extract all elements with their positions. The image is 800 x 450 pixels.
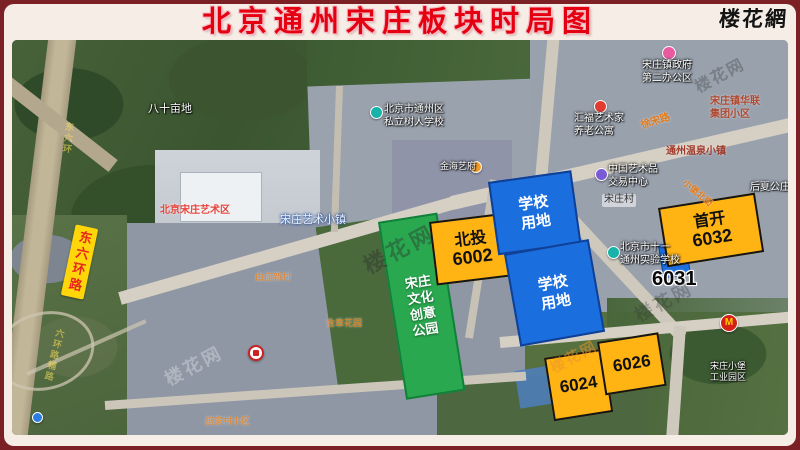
place-label-line: 私立树人学校 <box>384 117 444 130</box>
place-label-hualian-estate: 宋庄镇华联 集团小区 <box>710 96 760 121</box>
page-title: 北京通州宋庄板块时局图 <box>0 4 800 40</box>
place-label-town-government: 宋庄镇政府 第二办公区 <box>642 60 692 85</box>
place-label-line: 宋庄镇政府 <box>642 60 692 73</box>
place-label-line: 宋庄小堡 <box>710 361 746 372</box>
place-label-line: 北京市通州区 <box>384 104 444 117</box>
place-label-line: 汇福艺术家 <box>574 113 624 126</box>
place-label-hanzhang: 含章花园 <box>326 318 362 329</box>
poi-dot-icon <box>32 412 43 423</box>
place-label-huajiacun: 画家村小区 <box>205 416 250 427</box>
school-poi-icon <box>607 246 620 259</box>
government-poi-icon <box>662 46 676 60</box>
transit-stop-icon <box>248 345 264 361</box>
place-label-line: 养老公寓 <box>574 126 624 139</box>
plot-label: 6024 <box>558 372 598 398</box>
place-label-line: 交易中心 <box>608 177 658 190</box>
plot-label: 6002 <box>452 246 494 270</box>
place-label-jinhai: 金海艺府 <box>440 161 476 172</box>
plot-label: 6026 <box>612 351 652 377</box>
plot-school-land-south: 学校 用地 <box>504 239 605 347</box>
place-label-huifu-apartments: 汇福艺术家 养老公寓 <box>574 113 624 138</box>
plot-6026: 6026 <box>597 332 667 395</box>
place-label-line: 宋庄镇华联 <box>710 96 760 109</box>
place-label-bashimudi: 八十亩地 <box>148 103 192 117</box>
school-poi-icon <box>370 106 383 119</box>
place-label-industry-park: 宋庄小堡 工业园区 <box>710 361 746 384</box>
poster-root: { "header": { "title": "北京通州宋庄板块时局图", "l… <box>0 0 800 450</box>
place-label-songzhuang-village: 宋庄村 <box>602 194 636 207</box>
site-logo: 楼花網 <box>718 3 789 33</box>
plot-label: 6032 <box>691 226 734 251</box>
place-label-shuren-school: 北京市通州区 私立树人学校 <box>384 104 444 129</box>
mcdonalds-icon: M <box>720 314 738 332</box>
place-label-experimental-school: 北京市十一 通州实验学校 <box>620 242 680 267</box>
plot-label: 用地 <box>520 211 552 234</box>
place-label-art-district: 北京宋庄艺术区 <box>160 205 230 218</box>
place-label-line: 中国艺术品 <box>608 164 658 177</box>
place-label-line: 第二办公区 <box>642 73 692 86</box>
place-label-houxia: 后夏公庄 <box>750 182 788 195</box>
poi-marker-icon <box>595 168 608 181</box>
place-label-art-town: 宋庄艺术小镇 <box>280 214 346 228</box>
place-label-line: 通州实验学校 <box>620 255 680 268</box>
place-label-art-exchange: 中国艺术品 交易中心 <box>608 164 658 189</box>
place-label-line: 北京市十一 <box>620 242 680 255</box>
poi-marker-icon <box>594 100 607 113</box>
place-label-hot-spring: 通州温泉小镇 <box>666 146 726 159</box>
place-label-line: 集团小区 <box>710 109 760 122</box>
plot-label: 用地 <box>540 290 573 314</box>
plot-label: 公园 <box>411 320 439 340</box>
satellite-map: 东六环 六环路辅路 宋庄 文化 创意 公园 北投 6002 学校 用地 学校 用… <box>12 40 788 435</box>
place-label-baimiao: 白庙新村 <box>255 272 291 283</box>
place-label-line: 工业园区 <box>710 372 746 383</box>
